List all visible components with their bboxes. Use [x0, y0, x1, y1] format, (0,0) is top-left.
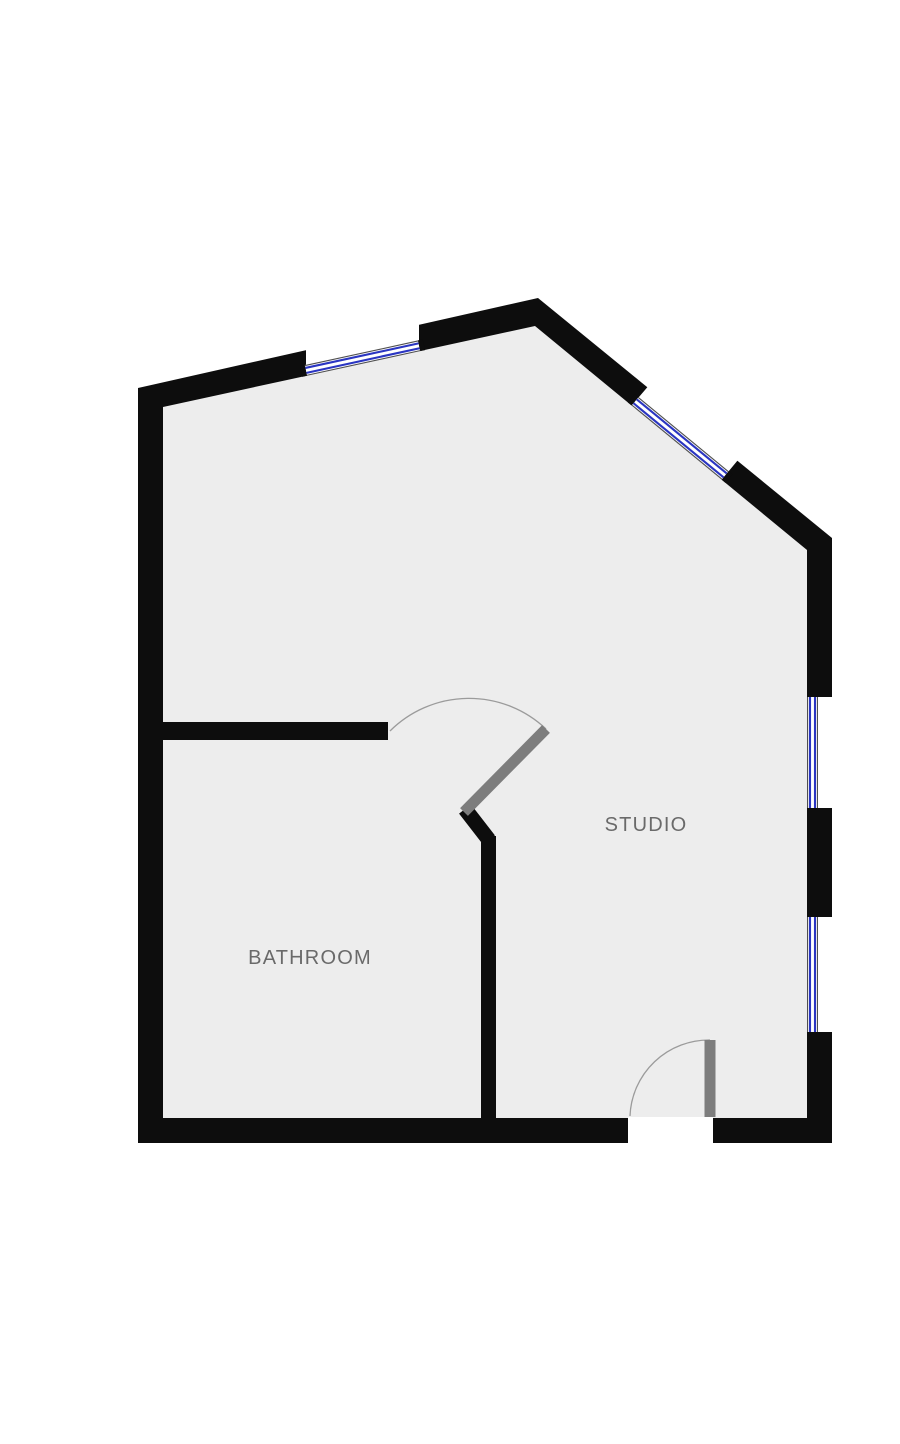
window-top-cap [301, 370, 306, 371]
window-diagonal-cap [631, 398, 635, 401]
room-label-studio: STUDIO [605, 814, 688, 836]
window-top-cap [419, 345, 424, 346]
floorplan-page: STUDIOBATHROOM [0, 0, 900, 1444]
wall-bathroom-right [481, 836, 496, 1118]
wall-bathroom-top [163, 722, 388, 740]
floorplan-canvas: STUDIOBATHROOM [0, 0, 900, 1444]
window-diagonal-cap [725, 475, 729, 478]
door-gap-entry [628, 1117, 713, 1148]
room-label-bathroom: BATHROOM [248, 947, 372, 969]
